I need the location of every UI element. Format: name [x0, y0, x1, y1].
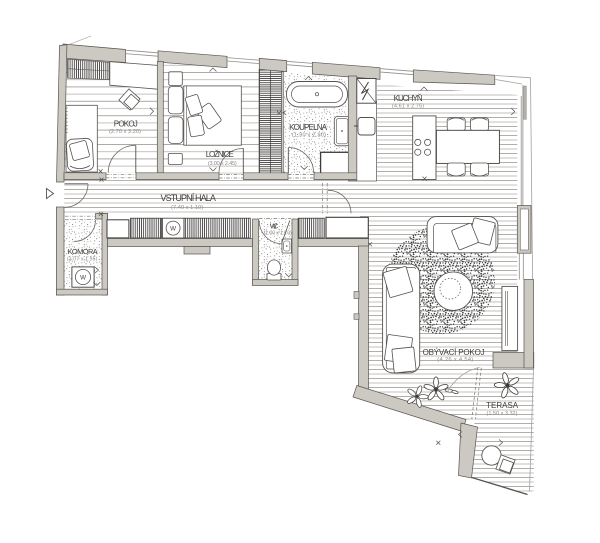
svg-text:(1.90 x 2.80): (1.90 x 2.80) [292, 133, 326, 139]
svg-text:(1.00 x 1.70): (1.00 x 1.70) [264, 231, 292, 237]
svg-text:(2.70 x 3.20): (2.70 x 3.20) [109, 129, 141, 135]
svg-text:(3.00 x 2.45): (3.00 x 2.45) [208, 161, 237, 167]
svg-text:W: W [80, 275, 86, 282]
svg-text:WC: WC [270, 221, 279, 230]
svg-text:W: W [170, 226, 176, 233]
svg-text:KOUPELNA: KOUPELNA [289, 123, 328, 132]
svg-text:OBÝVACÍ POKOJ: OBÝVACÍ POKOJ [423, 348, 485, 357]
svg-text:TERASA: TERASA [486, 401, 519, 410]
svg-text:(1.07 x 1.95): (1.07 x 1.95) [67, 256, 98, 262]
svg-text:KOMORA: KOMORA [67, 247, 97, 256]
svg-text:KUCHYŇ: KUCHYŇ [394, 94, 423, 103]
svg-text:(1.50 x 3.32): (1.50 x 3.32) [487, 411, 518, 417]
svg-text:VSTUPNÍ HALA: VSTUPNÍ HALA [160, 193, 216, 203]
svg-text:LOŽNICE: LOŽNICE [206, 150, 234, 159]
svg-text:(4.26 x 4.54): (4.26 x 4.54) [437, 357, 473, 363]
svg-text:(4.61 x 2.75): (4.61 x 2.75) [392, 104, 424, 110]
svg-text:(7.40 x 1.10): (7.40 x 1.10) [171, 205, 203, 211]
svg-text:POKOJ: POKOJ [114, 120, 138, 129]
